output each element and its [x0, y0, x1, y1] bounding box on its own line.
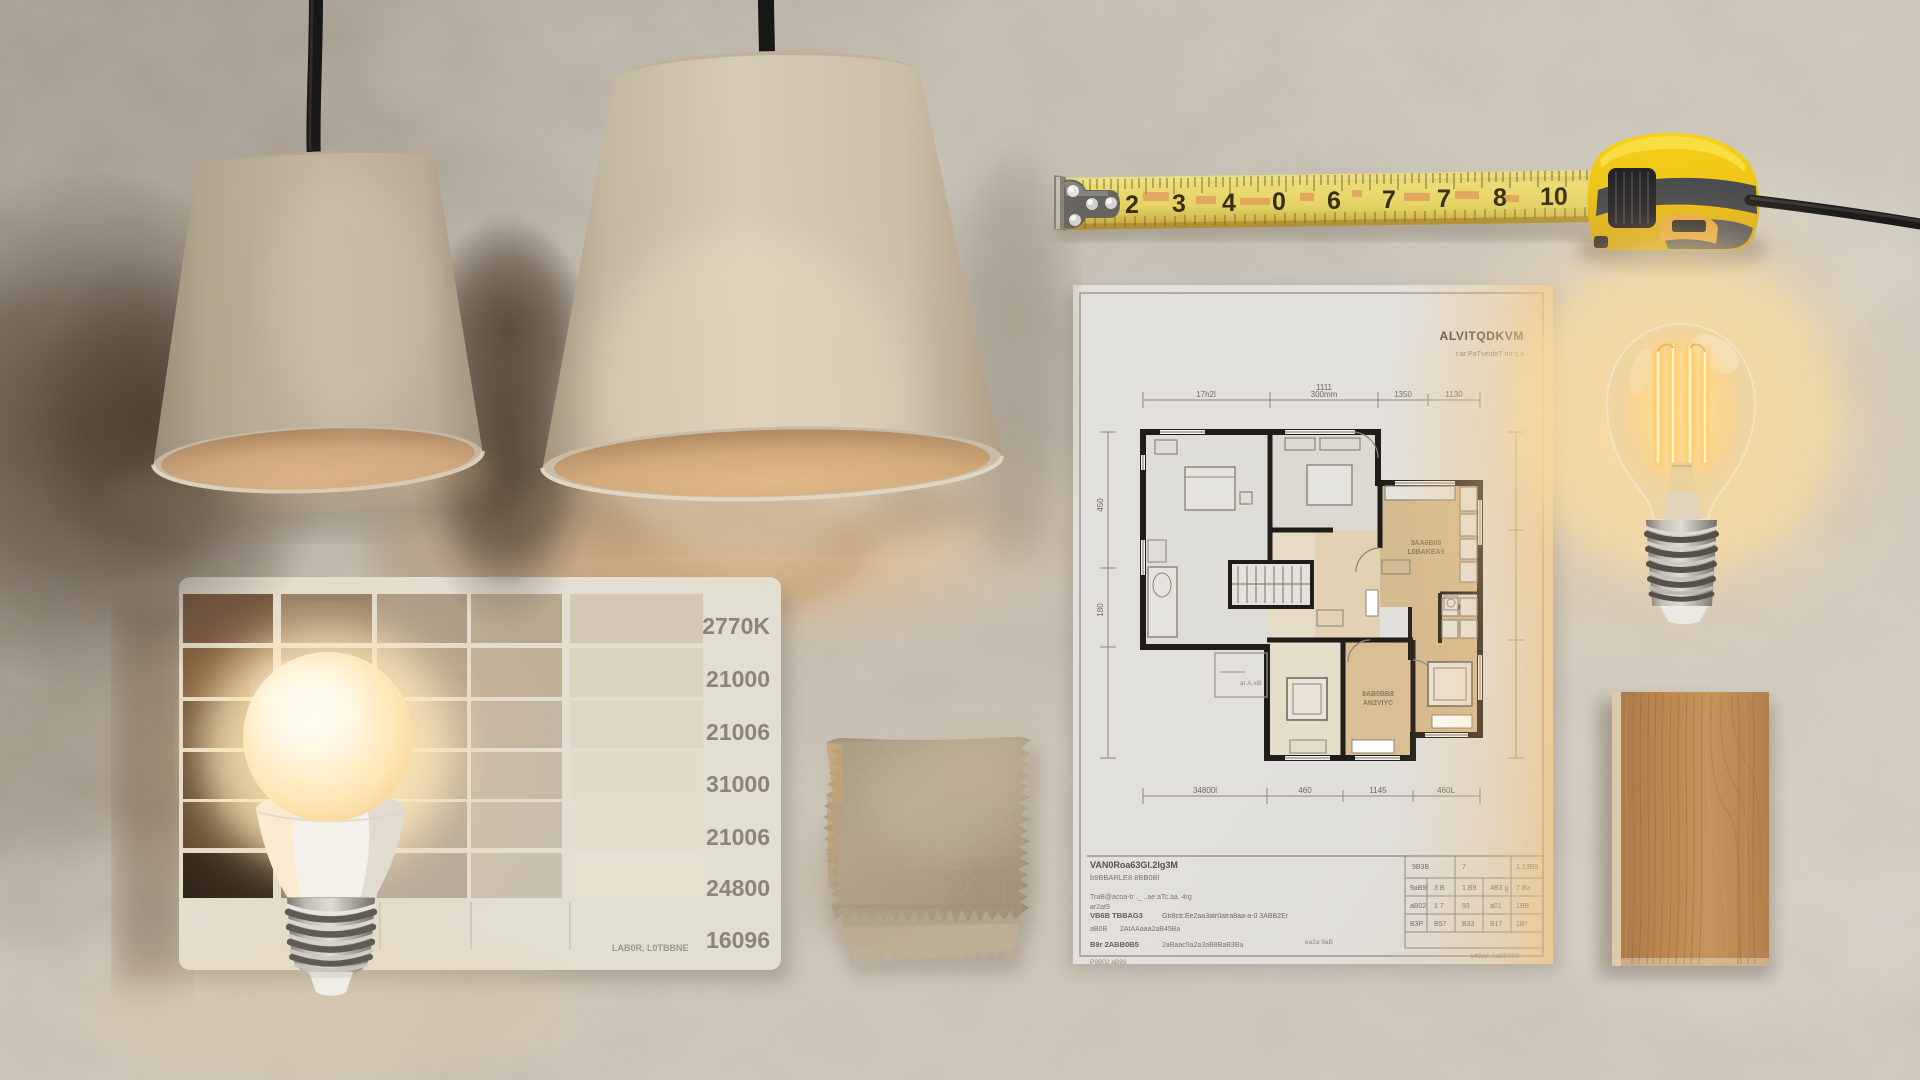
svg-text:9AB0BB8: 9AB0BB8 [1362, 691, 1394, 698]
svg-text:AN2VIYC: AN2VIYC [1363, 700, 1393, 707]
svg-text:1145: 1145 [1369, 786, 1387, 795]
svg-text:ar A.xi8: ar A.xi8 [1240, 680, 1262, 687]
svg-text:TraB@acoa-tr ._ ..ae.aTc.aa.: TraB@acoa-tr ._ ..ae.aTc.aa. 4rg [1090, 894, 1192, 901]
svg-text:450: 450 [1096, 498, 1105, 512]
svg-text:2770K: 2770K [702, 613, 770, 639]
svg-text:31000: 31000 [706, 771, 770, 797]
svg-text:16096: 16096 [706, 927, 770, 953]
svg-text:34800l: 34800l [1193, 786, 1217, 795]
svg-text:LAB0R, L0TBBNE: LAB0R, L0TBBNE [612, 943, 689, 953]
svg-text:3: 3 [1172, 190, 1186, 218]
svg-text:2: 2 [1125, 191, 1139, 219]
svg-text:460: 460 [1298, 786, 1312, 795]
svg-text:ea2a 9aB: ea2a 9aB [1305, 939, 1333, 946]
svg-text:aB0B: aB0B [1090, 926, 1107, 933]
svg-text:7: 7 [1382, 186, 1396, 214]
svg-text:VAN0Roa63Gl.2lg3M: VAN0Roa63Gl.2lg3M [1090, 860, 1178, 870]
svg-text:21000: 21000 [706, 666, 770, 692]
svg-text:4: 4 [1222, 189, 1236, 217]
svg-text:B9r 2ABB0B5: B9r 2ABB0B5 [1090, 940, 1139, 949]
svg-text:VB6B TBBAG3: VB6B TBBAG3 [1090, 911, 1143, 920]
svg-text:ar2at9: ar2at9 [1090, 904, 1110, 911]
svg-text:b9BBARLE8 8BB0Bl: b9BBARLE8 8BB0Bl [1090, 873, 1160, 882]
svg-text:21006: 21006 [706, 719, 770, 745]
svg-text:6: 6 [1327, 187, 1341, 215]
svg-text:180: 180 [1096, 603, 1105, 617]
svg-text:Gtr8ctr.Ee2aa3atr0atra8aa-a-0: Gtr8ctr.Ee2aa3atr0atra8aa-a-0 3ABB2Er [1162, 913, 1289, 920]
svg-text:300mm: 300mm [1311, 390, 1338, 399]
svg-text:21006: 21006 [706, 824, 770, 850]
svg-text:2AtAAaaa2aB45Ba: 2AtAAaaa2aB45Ba [1120, 926, 1180, 933]
svg-text:0: 0 [1272, 188, 1286, 216]
svg-text:24800: 24800 [706, 875, 770, 901]
svg-text:P9B02 aB99: P9B02 aB99 [1090, 959, 1127, 966]
svg-text:2aBaac9a2a3aB8BaB3Ba: 2aBaac9a2a3aB8BaB3Ba [1162, 942, 1243, 949]
svg-text:7: 7 [1437, 185, 1451, 213]
svg-text:17h2l: 17h2l [1196, 390, 1216, 399]
